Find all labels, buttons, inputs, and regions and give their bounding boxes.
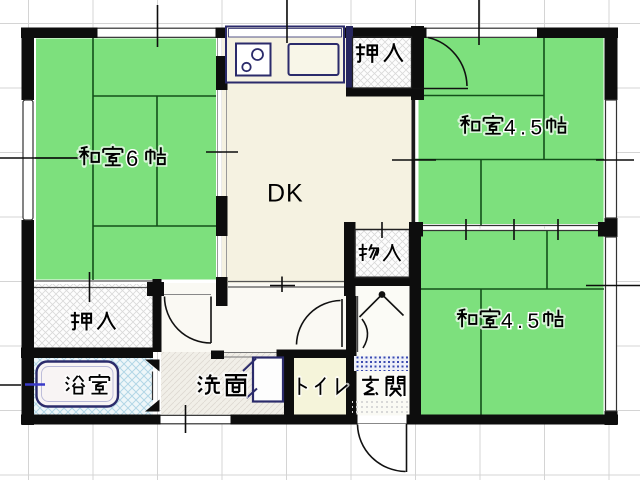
svg-text:4.5: 4.5: [501, 310, 544, 333]
svg-text:6: 6: [126, 146, 138, 171]
svg-text:DK: DK: [267, 180, 304, 208]
svg-text:4.5: 4.5: [504, 117, 547, 140]
